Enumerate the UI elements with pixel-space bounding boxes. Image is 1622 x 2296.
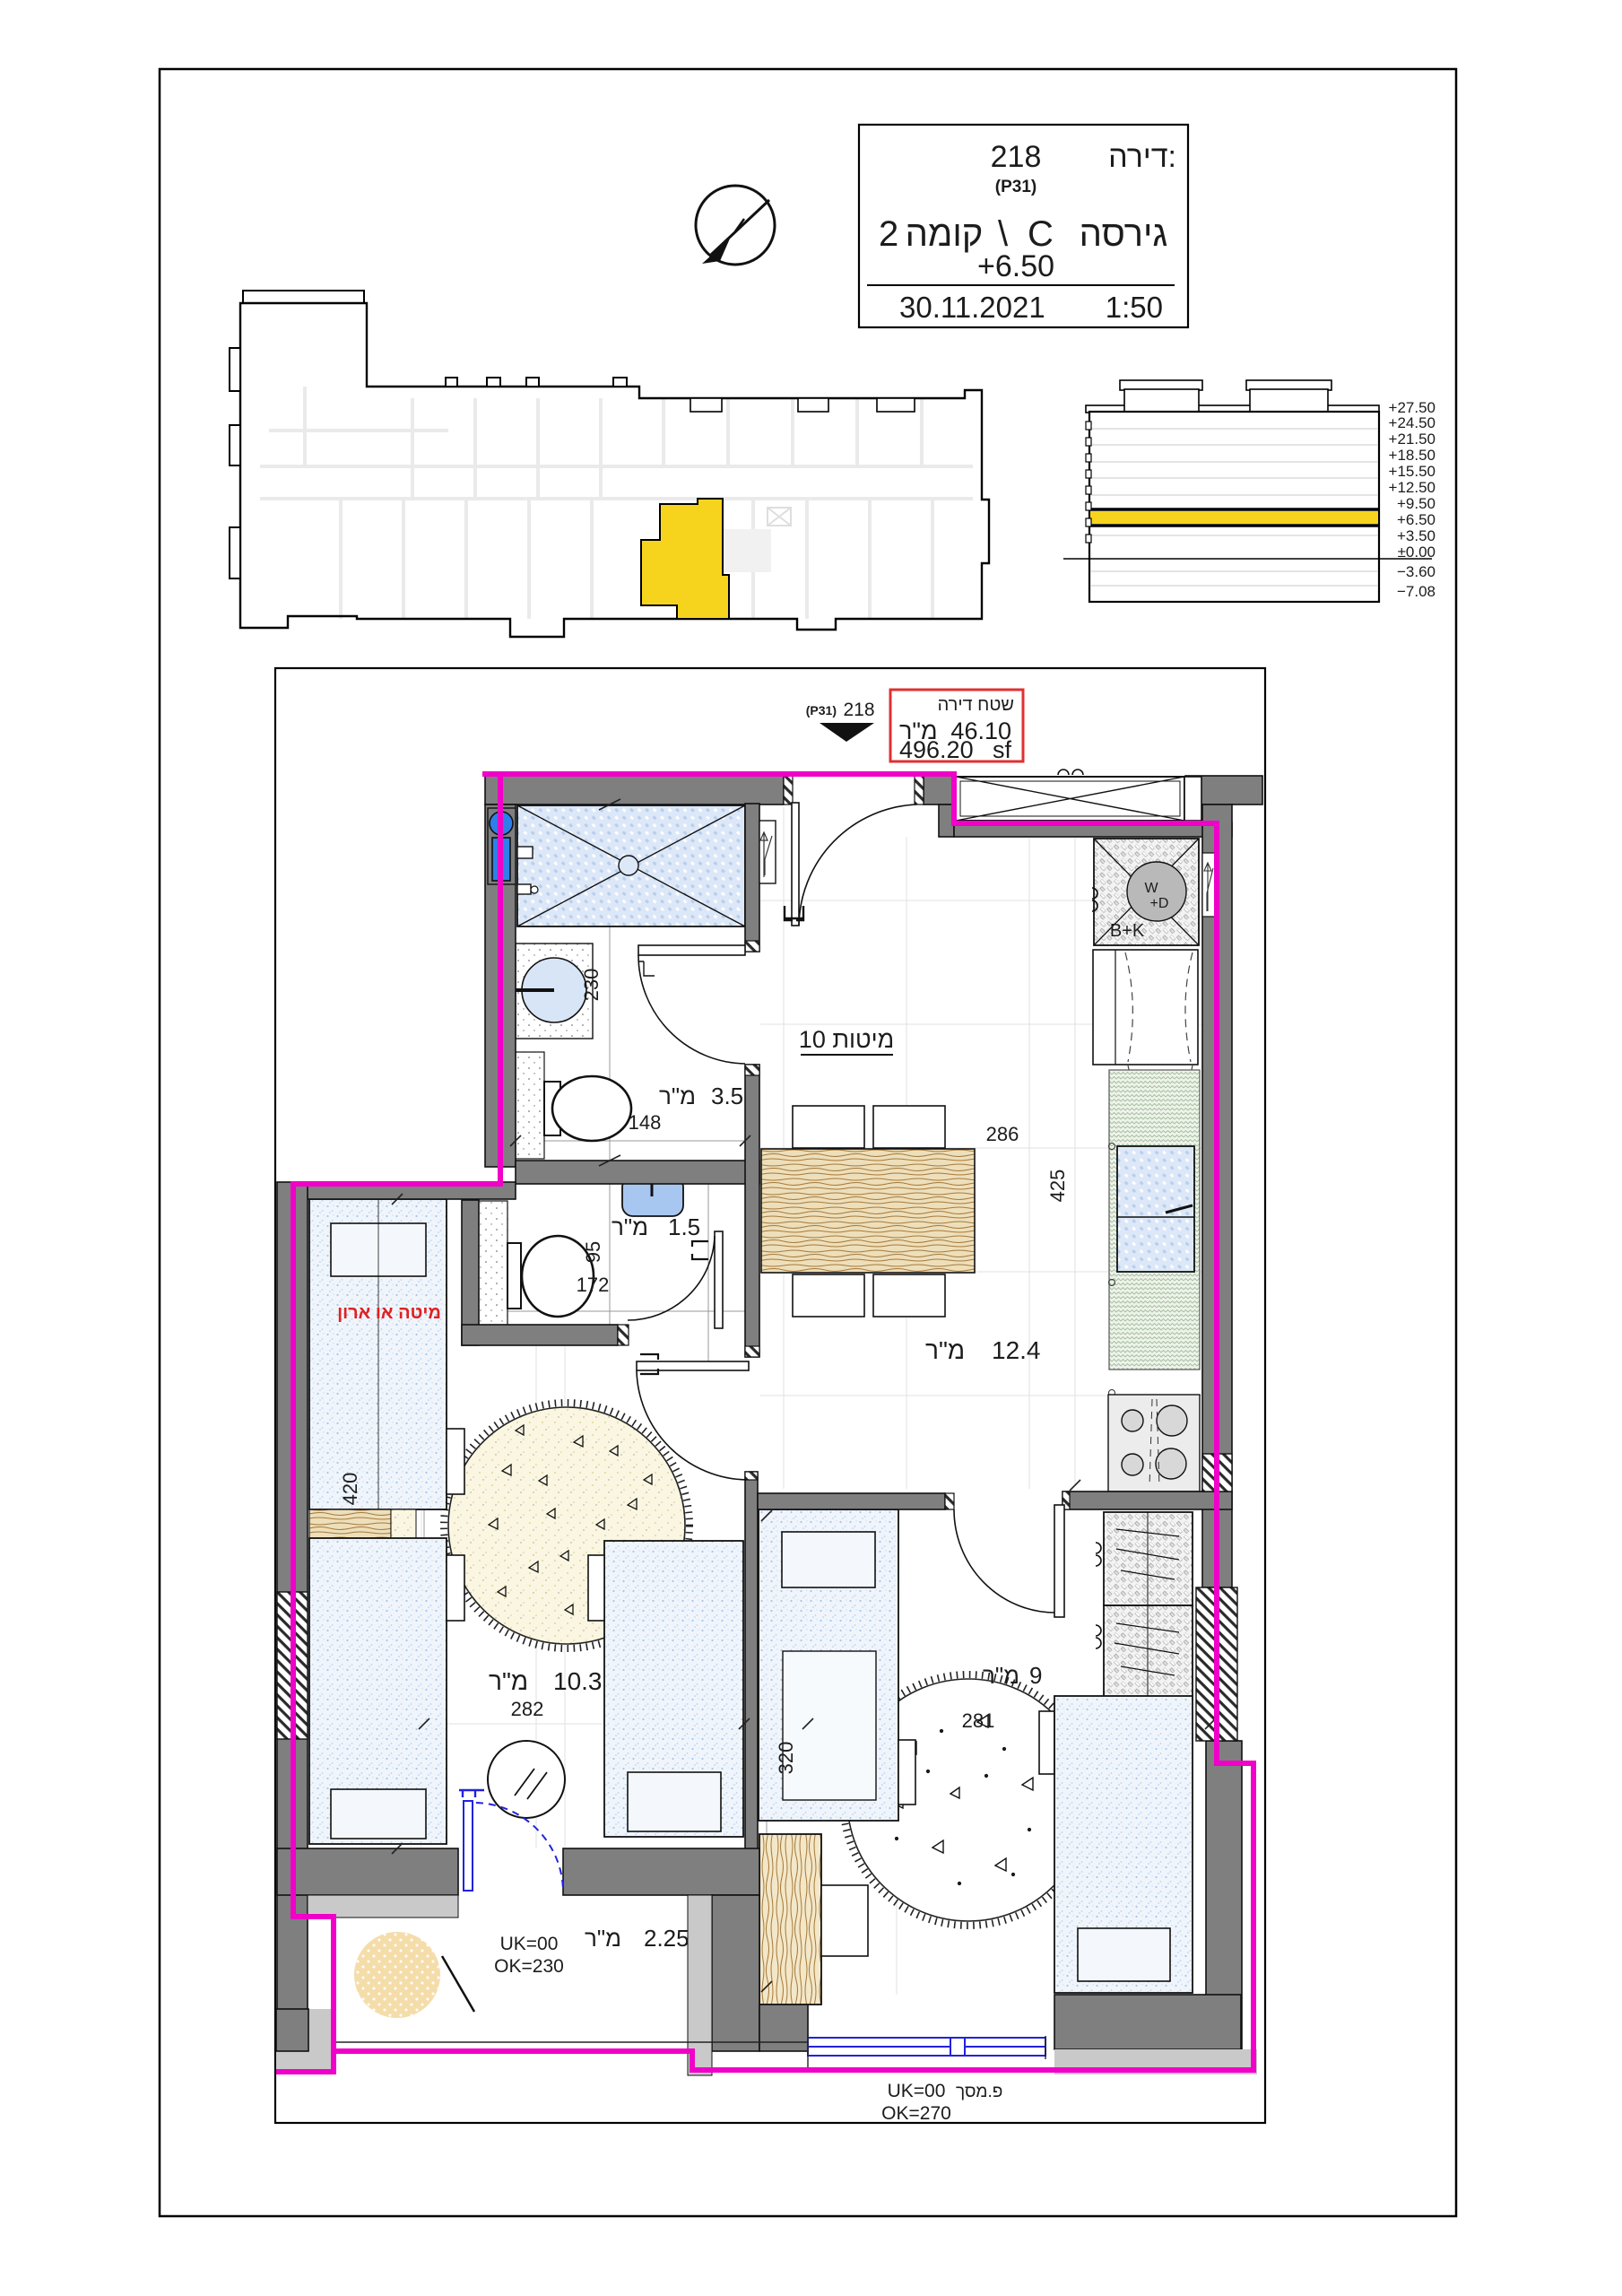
- svg-text:(P31): (P31): [806, 703, 837, 717]
- svg-text:+3.50: +3.50: [1397, 527, 1436, 544]
- svg-text:UK=00: UK=00: [500, 1934, 559, 1954]
- svg-text:מ"ר: מ"ר: [925, 1336, 965, 1364]
- svg-text:+6.50: +6.50: [1397, 511, 1436, 528]
- svg-text:95: 95: [582, 1241, 604, 1263]
- svg-text:496.20: 496.20: [899, 736, 974, 763]
- svg-text:C: C: [1028, 214, 1054, 254]
- svg-text:(P31): (P31): [995, 178, 1037, 196]
- svg-text:מיטות 10: מיטות 10: [799, 1026, 894, 1053]
- svg-text:12.4: 12.4: [992, 1336, 1041, 1364]
- svg-text:1.5: 1.5: [668, 1213, 700, 1240]
- svg-text:1:50: 1:50: [1106, 291, 1163, 324]
- svg-text:172: 172: [577, 1274, 610, 1296]
- svg-text:שטח דירה: שטח דירה: [938, 695, 1014, 715]
- svg-text:+12.50: +12.50: [1389, 479, 1436, 496]
- svg-text:מ"ר: מ"ר: [585, 1925, 621, 1952]
- svg-text:מ"ר: מ"ר: [489, 1667, 528, 1695]
- svg-text:OK=230: OK=230: [494, 1956, 564, 1977]
- svg-text:281: 281: [962, 1709, 995, 1732]
- svg-text:320: 320: [775, 1742, 797, 1775]
- svg-text:+24.50: +24.50: [1389, 414, 1436, 431]
- svg-text:−3.60: −3.60: [1397, 563, 1436, 580]
- svg-text:W: W: [1144, 881, 1158, 896]
- svg-text:148: 148: [629, 1111, 662, 1134]
- svg-text:282: 282: [511, 1698, 544, 1720]
- svg-text:פ.מסך: פ.מסך: [956, 2083, 1002, 2101]
- svg-text:420: 420: [339, 1473, 361, 1506]
- svg-text:286: 286: [986, 1123, 1019, 1145]
- svg-text:2: 2: [879, 214, 898, 254]
- svg-text:דירה:: דירה:: [1108, 140, 1176, 174]
- svg-text:3.5: 3.5: [711, 1083, 743, 1109]
- svg-text:+15.50: +15.50: [1389, 463, 1436, 480]
- svg-text:+D: +D: [1150, 896, 1169, 911]
- svg-text:גירסה: גירסה: [1080, 214, 1168, 254]
- svg-text:218: 218: [843, 700, 874, 720]
- svg-text:10.3: 10.3: [553, 1667, 603, 1695]
- svg-text:OK=270: OK=270: [881, 2103, 951, 2124]
- svg-text:+6.50: +6.50: [977, 249, 1054, 283]
- svg-text:B+K: B+K: [1110, 921, 1145, 941]
- svg-text:+18.50: +18.50: [1389, 447, 1436, 464]
- svg-text:+21.50: +21.50: [1389, 430, 1436, 448]
- svg-text:מ"ר: מ"ר: [983, 1662, 1019, 1689]
- svg-text:קומה: קומה: [906, 214, 984, 254]
- svg-text:218: 218: [991, 140, 1042, 174]
- svg-text:מ"ר: מ"ר: [659, 1083, 696, 1109]
- svg-text:sf: sf: [993, 736, 1012, 763]
- svg-text:+9.50: +9.50: [1397, 495, 1436, 512]
- svg-text:230: 230: [580, 969, 603, 1002]
- svg-text:30.11.2021: 30.11.2021: [899, 291, 1045, 324]
- svg-text:2.25: 2.25: [644, 1925, 690, 1952]
- svg-text:9: 9: [1029, 1662, 1042, 1689]
- svg-text:מיטה או ארון: מיטה או ארון: [337, 1303, 441, 1323]
- svg-text:−7.08: −7.08: [1397, 583, 1436, 600]
- svg-text:UK=00: UK=00: [888, 2081, 946, 2101]
- svg-text:\: \: [998, 214, 1009, 254]
- svg-text:מ"ר: מ"ר: [612, 1213, 648, 1240]
- svg-text:425: 425: [1046, 1170, 1069, 1203]
- svg-text:±0.00: ±0.00: [1398, 544, 1436, 561]
